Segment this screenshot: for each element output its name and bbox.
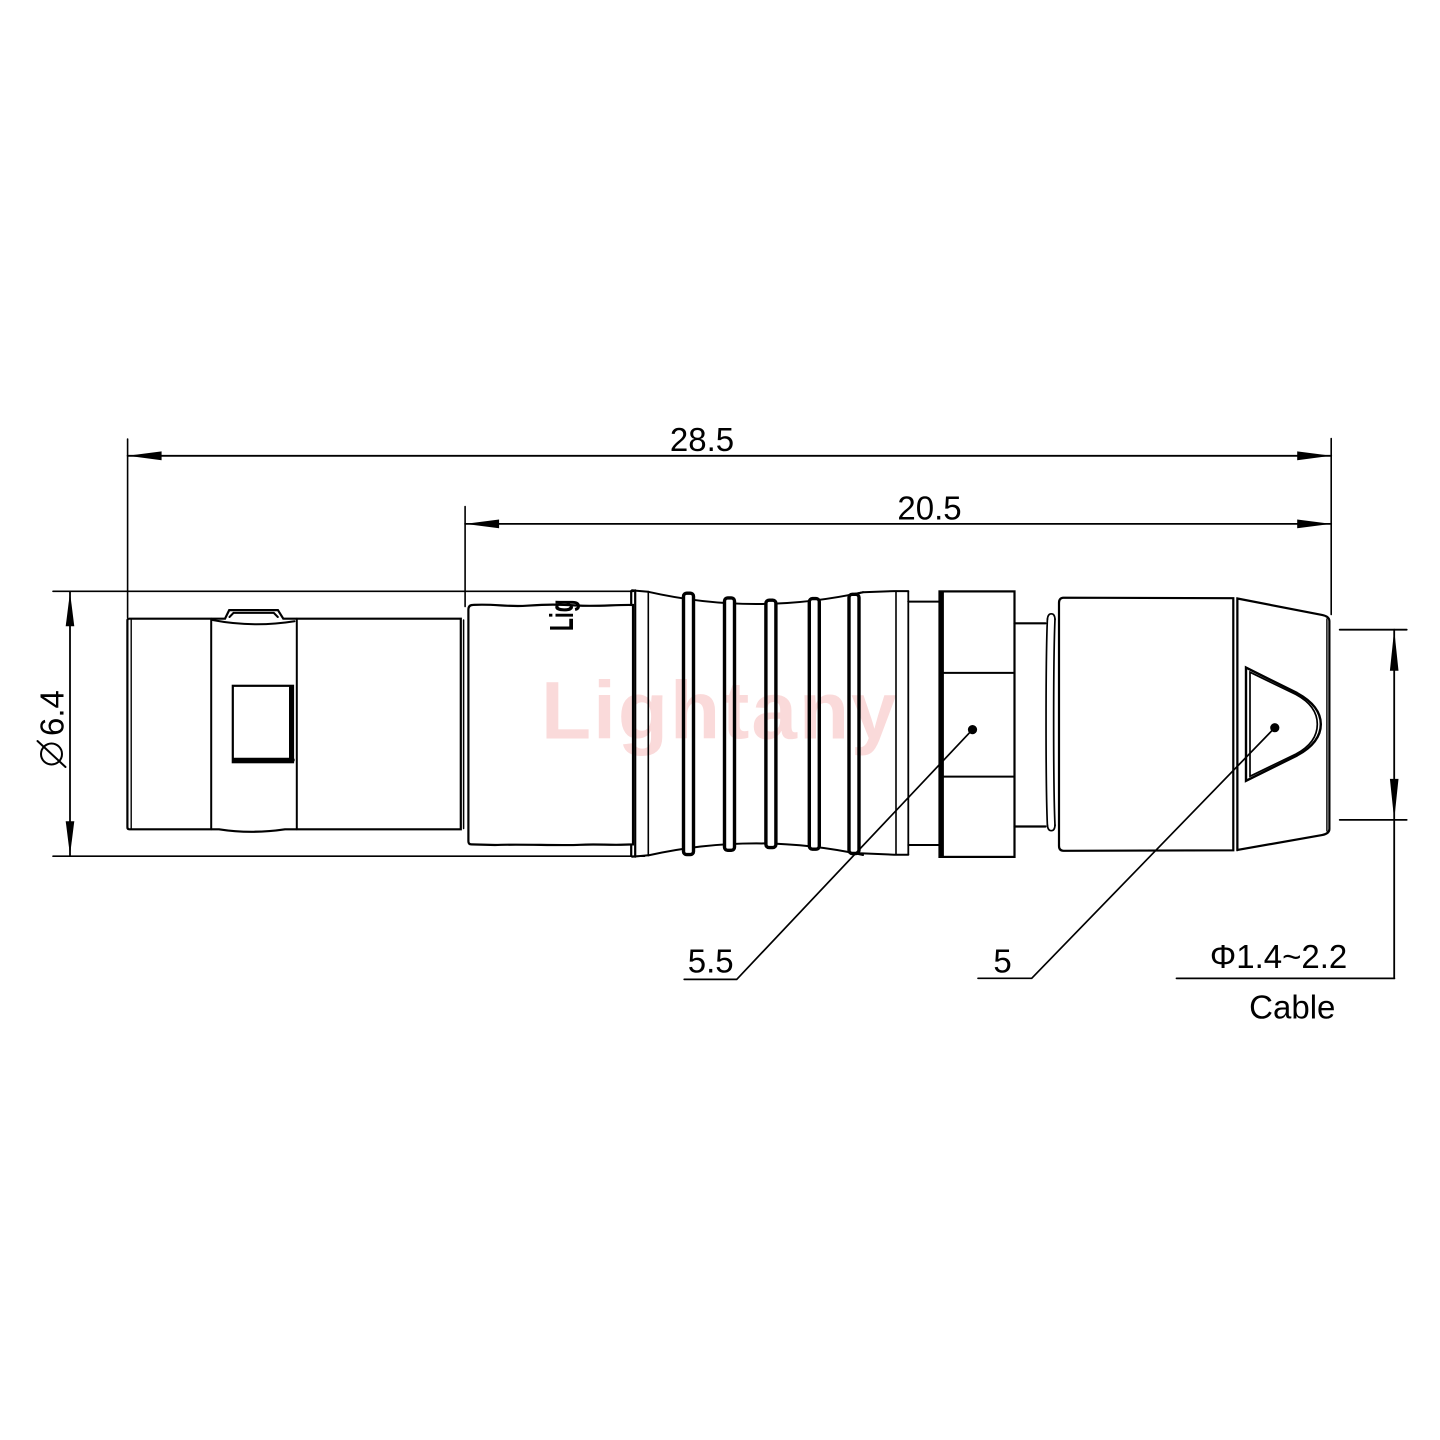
svg-text:28.5: 28.5: [670, 421, 734, 458]
svg-text:5.5: 5.5: [688, 943, 734, 980]
svg-text:Cable: Cable: [1249, 988, 1335, 1025]
svg-text:Φ1.4~2.2: Φ1.4~2.2: [1210, 938, 1347, 975]
svg-text:Lig: Lig: [543, 599, 580, 631]
svg-text:Lightany: Lightany: [541, 666, 899, 757]
svg-text:5: 5: [993, 943, 1011, 980]
svg-text:20.5: 20.5: [897, 490, 961, 527]
svg-text:6.4: 6.4: [34, 690, 71, 736]
